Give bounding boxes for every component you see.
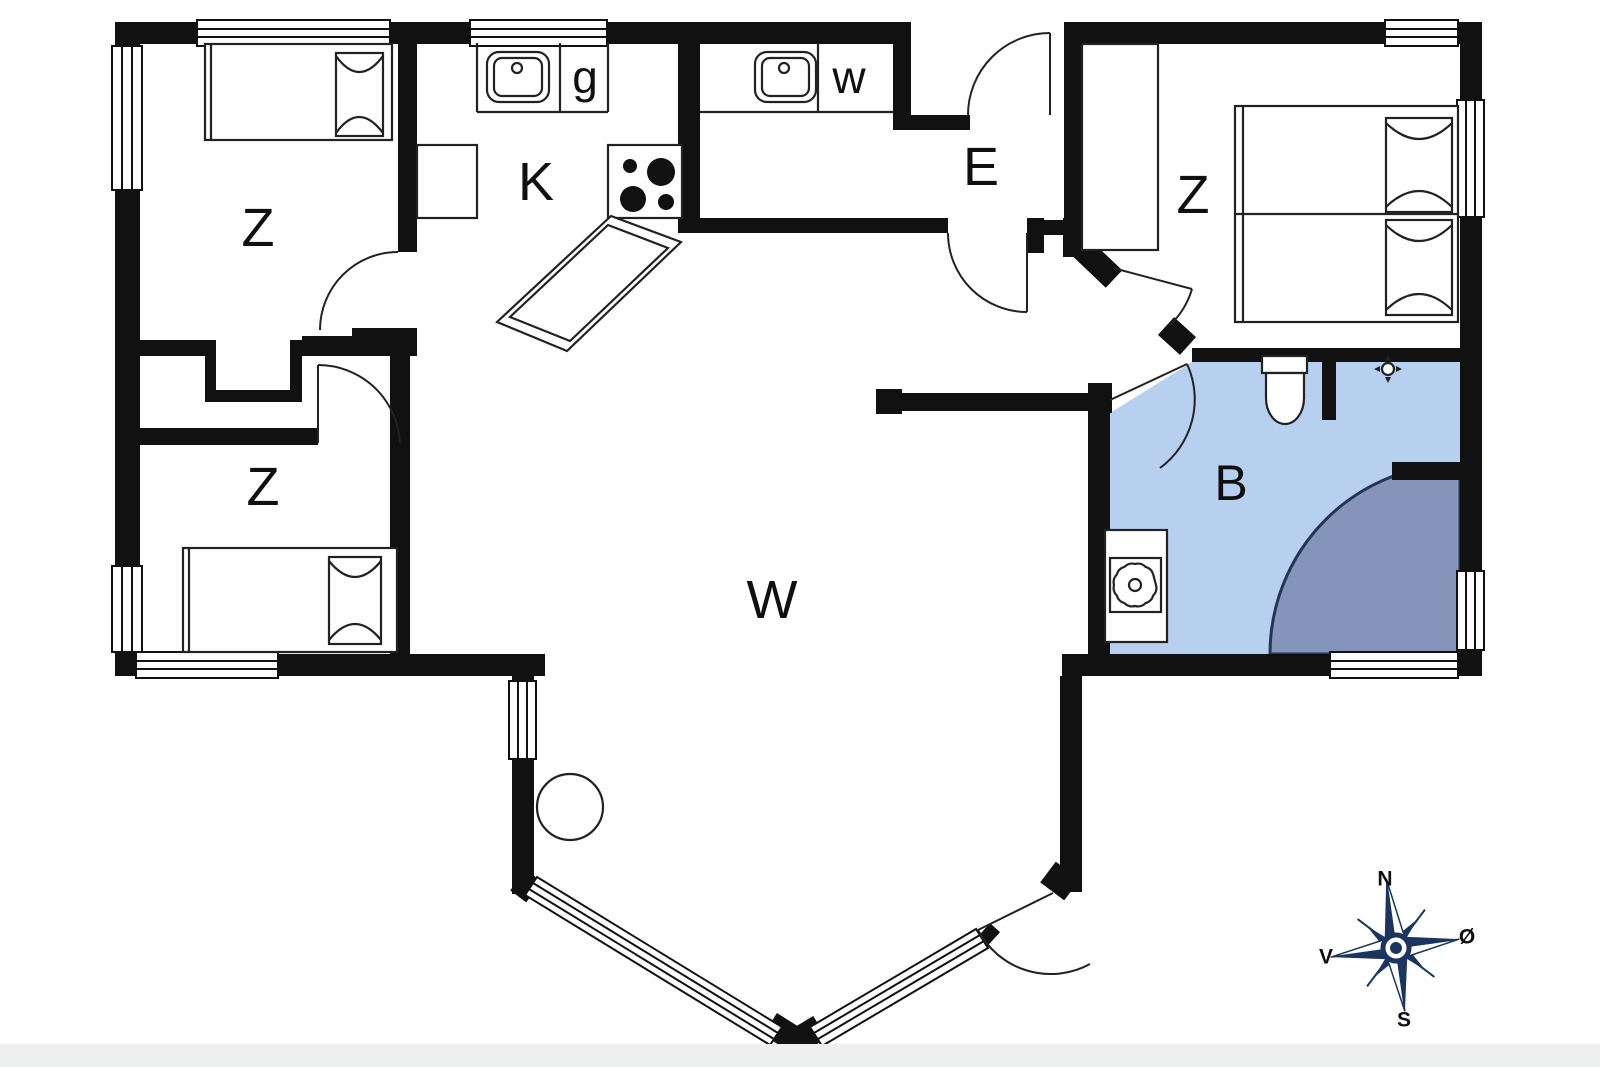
window-diagonal	[810, 929, 988, 1046]
wall	[1088, 383, 1112, 413]
wall	[205, 390, 302, 402]
sink-icon	[487, 52, 549, 102]
wall-cap	[1048, 872, 1072, 890]
room-label-living: W	[747, 570, 798, 630]
room-label-bedroom-right: Z	[1177, 165, 1210, 225]
window	[112, 46, 142, 190]
window-diagonal	[525, 877, 782, 1045]
compass-east-label: Ø	[1459, 926, 1475, 949]
room-label-bathroom: B	[1214, 455, 1247, 511]
single-bed-icon	[205, 44, 392, 140]
room-label-w: w	[831, 51, 866, 103]
wall-diagonal	[1166, 326, 1188, 346]
window	[197, 20, 390, 46]
window	[136, 652, 278, 678]
compass-north-label: N	[1377, 868, 1392, 891]
window	[509, 681, 536, 759]
door-bedroom-top-left	[320, 252, 398, 330]
toilet-icon	[1262, 356, 1307, 424]
compass-rose-icon: N S V Ø	[1319, 868, 1475, 1032]
wall	[678, 218, 948, 233]
wall	[1060, 676, 1082, 892]
compass-west-label: V	[1319, 946, 1333, 969]
wall	[878, 393, 1110, 411]
room-label-entry: E	[963, 137, 999, 197]
washing-machine-icon	[1105, 530, 1167, 642]
window	[1457, 100, 1484, 217]
wall	[1322, 356, 1336, 420]
kitchen-island	[497, 216, 681, 351]
wall	[1064, 43, 1082, 235]
compass-star	[1321, 870, 1468, 1021]
room-label-g: g	[572, 51, 598, 103]
room-label-kitchen: K	[518, 152, 554, 212]
room-label-bedroom-top-left: Z	[242, 198, 275, 258]
compass-south-label: S	[1397, 1009, 1411, 1032]
wall	[133, 340, 205, 356]
room-label-bedroom-bottom-left: Z	[247, 457, 280, 517]
wall	[398, 43, 417, 252]
round-table-icon	[537, 774, 603, 840]
window	[470, 20, 607, 46]
single-bed-icon	[183, 548, 397, 652]
wall	[115, 428, 318, 445]
wall	[390, 352, 410, 445]
bottom-band	[0, 1044, 1600, 1067]
floor-plan-canvas: Z Z Z K g w E W B N	[0, 0, 1600, 1067]
wall	[302, 336, 398, 356]
door-entrance	[968, 33, 1050, 115]
window	[1457, 571, 1484, 650]
floor-plan-page: Z Z Z K g w E W B N	[0, 0, 1600, 1067]
sink-icon	[755, 52, 816, 102]
window	[1385, 20, 1458, 46]
door-bedroom-right	[1113, 268, 1192, 325]
wall	[1392, 462, 1460, 480]
wall	[911, 115, 970, 130]
double-bed-icon	[1235, 106, 1458, 322]
window	[1330, 652, 1458, 678]
door-bedroom-bottom-left	[318, 365, 400, 443]
wall	[893, 43, 911, 130]
stove-burners-icon	[608, 145, 682, 218]
door-entry-to-living	[948, 233, 1027, 312]
wardrobe-icon	[1082, 44, 1158, 250]
window	[112, 566, 142, 652]
closet-niche	[216, 340, 290, 390]
wall	[876, 389, 902, 414]
